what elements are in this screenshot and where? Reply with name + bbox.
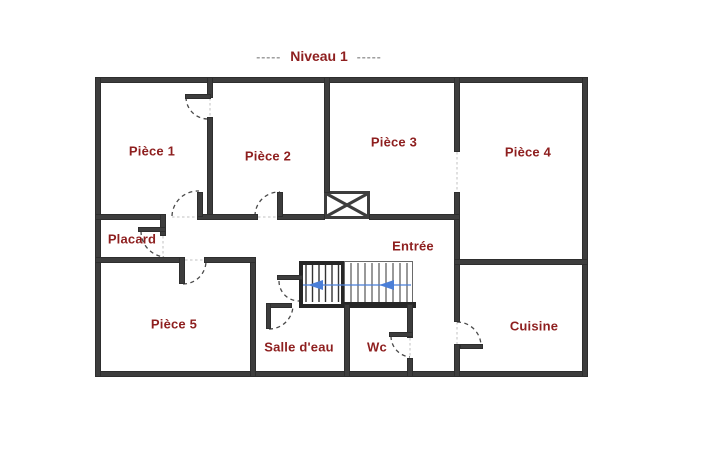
wall-segment (454, 192, 460, 322)
room-label-piece-4: Pièce 4 (505, 145, 551, 160)
room-label-entree: Entrée (392, 239, 434, 254)
wall-segment (460, 344, 483, 349)
wall-segment (266, 303, 271, 329)
wall-segment (389, 332, 413, 337)
wall-segment (454, 77, 460, 152)
room-label-wc: Wc (367, 340, 387, 355)
wall-segment (204, 257, 256, 263)
wall-segment (277, 192, 283, 217)
door-swing-arc (391, 336, 410, 357)
wall-segment (277, 275, 303, 280)
title-text: Niveau 1 (290, 48, 348, 64)
room-label-piece-2: Pièce 2 (245, 149, 291, 164)
room-label-salle-deau: Salle d'eau (264, 340, 334, 355)
room-label-cuisine: Cuisine (510, 319, 558, 334)
wall-segment (344, 304, 350, 377)
door-swing-arc (457, 322, 481, 346)
wall-segment (277, 214, 325, 220)
wall-segment (160, 214, 166, 236)
door-swing-arc (269, 306, 293, 329)
wall-segment (250, 258, 256, 377)
wall-segment (454, 259, 588, 265)
title-dashes-right: ----- (357, 50, 382, 64)
wall-segment (197, 214, 258, 220)
wall-segment (95, 257, 185, 263)
wall-segment (179, 257, 185, 284)
wall-segment (95, 214, 165, 220)
wall-segment (138, 227, 166, 232)
wall-segment (95, 77, 101, 377)
wall-segment (95, 77, 588, 83)
room-label-piece-3: Pièce 3 (371, 135, 417, 150)
room-label-piece-1: Pièce 1 (129, 144, 175, 159)
door-swing-arc (183, 261, 206, 284)
room-label-placard: Placard (108, 232, 156, 247)
wall-segment (369, 214, 460, 220)
wall-segment (324, 77, 330, 193)
wall-segment (95, 371, 588, 377)
door-swing-arc (186, 97, 209, 119)
door-swing-arc (172, 191, 199, 216)
staircase-lower-flight (344, 261, 413, 308)
door-swing-arc (279, 281, 299, 301)
shaft-box (324, 191, 370, 219)
wall-segment (197, 192, 203, 217)
plan-title: -----Niveau 1----- (256, 48, 382, 66)
wall-segment (207, 117, 213, 220)
wall-segment (185, 94, 211, 99)
wall-segment (407, 358, 413, 377)
staircase-edge (343, 302, 416, 308)
title-dashes-left: ----- (256, 50, 281, 64)
staircase-upper-flight (299, 261, 345, 308)
room-label-piece-5: Pièce 5 (151, 317, 197, 332)
floor-plan: -----Niveau 1----- (0, 0, 707, 450)
plan-overlay (0, 0, 707, 450)
wall-segment (582, 77, 588, 377)
